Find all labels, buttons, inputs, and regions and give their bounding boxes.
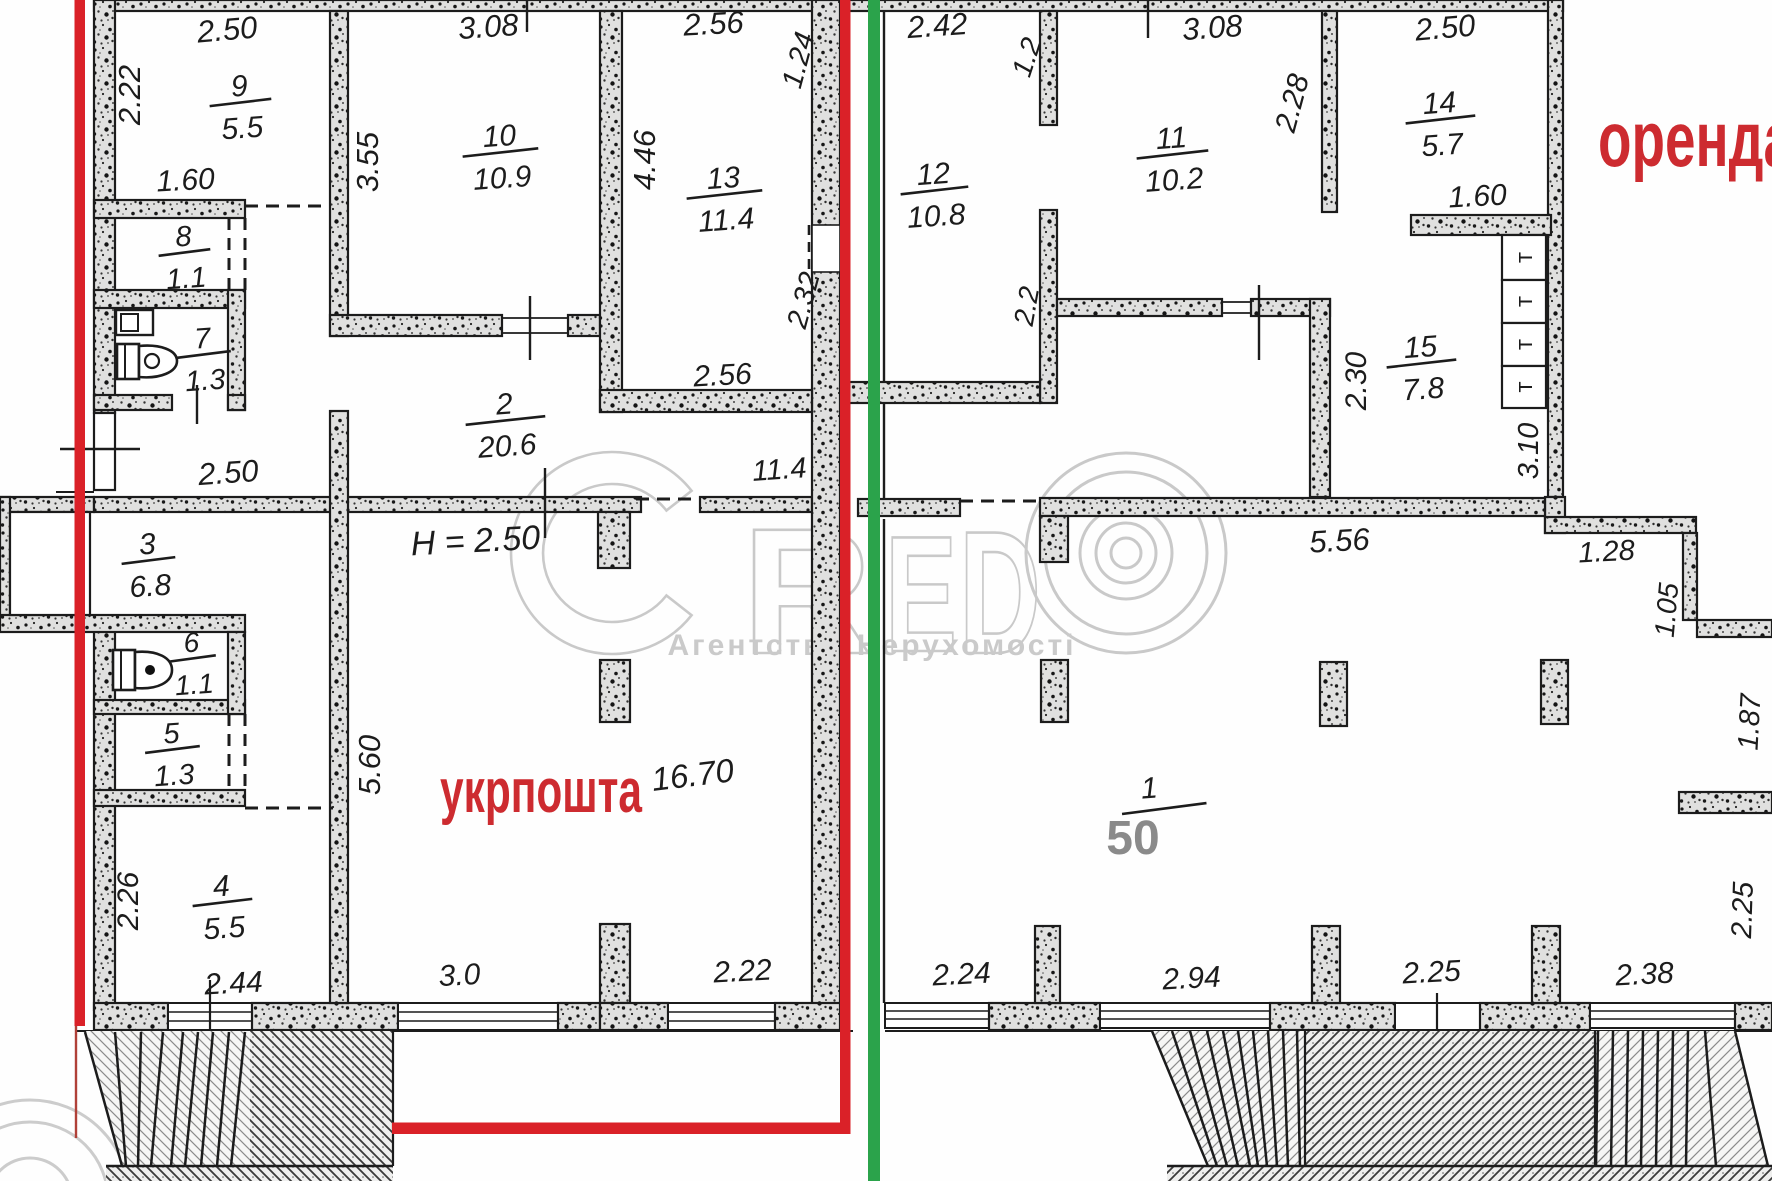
svg-text:3.08: 3.08 [457, 7, 520, 46]
svg-text:5.60: 5.60 [352, 735, 387, 795]
svg-text:5: 5 [162, 717, 181, 750]
svg-text:20.6: 20.6 [476, 428, 538, 465]
svg-text:2.50: 2.50 [195, 9, 259, 49]
svg-text:2.56: 2.56 [681, 4, 745, 42]
svg-text:1: 1 [1140, 771, 1159, 805]
svg-text:10.8: 10.8 [906, 198, 967, 235]
svg-text:1.60: 1.60 [1447, 178, 1507, 214]
svg-text:5.7: 5.7 [1420, 127, 1465, 163]
svg-text:т: т [1511, 339, 1538, 350]
svg-text:3: 3 [138, 527, 157, 561]
svg-text:2.94: 2.94 [1160, 961, 1221, 997]
svg-text:т: т [1511, 296, 1538, 307]
svg-text:2: 2 [494, 387, 514, 421]
svg-text:4: 4 [212, 869, 231, 903]
svg-text:9: 9 [230, 69, 249, 103]
svg-text:2.22: 2.22 [112, 65, 147, 126]
svg-text:5.56: 5.56 [1308, 521, 1371, 559]
svg-text:1.87: 1.87 [1733, 691, 1768, 751]
svg-text:5.5: 5.5 [220, 110, 264, 146]
svg-text:оренда: оренда [1598, 95, 1772, 183]
svg-text:1.05: 1.05 [1649, 581, 1685, 638]
svg-text:10.9: 10.9 [472, 160, 533, 197]
svg-text:11: 11 [1155, 121, 1188, 156]
svg-text:2.25: 2.25 [1726, 880, 1760, 939]
svg-text:14: 14 [1422, 86, 1458, 121]
svg-text:т: т [1511, 382, 1538, 393]
svg-text:1.3: 1.3 [184, 364, 226, 399]
svg-text:1.28: 1.28 [1578, 535, 1636, 570]
svg-text:3.10: 3.10 [1513, 423, 1545, 479]
svg-text:2.50: 2.50 [1413, 7, 1477, 47]
svg-text:8: 8 [174, 220, 192, 253]
svg-text:2.30: 2.30 [1340, 351, 1373, 411]
svg-text:11.4: 11.4 [751, 452, 807, 488]
svg-text:2.42: 2.42 [905, 6, 969, 45]
svg-text:7.8: 7.8 [1401, 371, 1445, 407]
svg-text:13: 13 [706, 161, 742, 196]
svg-text:H = 2.50: H = 2.50 [410, 519, 541, 564]
svg-text:1.3: 1.3 [153, 759, 195, 794]
svg-text:2.26: 2.26 [112, 871, 145, 931]
svg-text:4.46: 4.46 [627, 129, 662, 190]
svg-text:50: 50 [1106, 812, 1159, 865]
svg-text:2.44: 2.44 [202, 966, 263, 1002]
svg-text:1.1: 1.1 [165, 262, 207, 297]
svg-text:2.38: 2.38 [1613, 956, 1674, 992]
svg-text:11.4: 11.4 [697, 202, 755, 239]
svg-text:2.56: 2.56 [691, 357, 752, 393]
svg-text:2.22: 2.22 [711, 953, 772, 989]
svg-text:6.8: 6.8 [128, 568, 172, 604]
svg-text:3.08: 3.08 [1181, 8, 1244, 47]
svg-text:т: т [1511, 252, 1538, 263]
svg-text:1.1: 1.1 [174, 668, 215, 702]
svg-text:1.60: 1.60 [155, 162, 215, 198]
svg-text:12: 12 [916, 157, 952, 192]
svg-text:2.25: 2.25 [1400, 954, 1461, 990]
svg-text:укрпошта: укрпошта [440, 757, 642, 826]
svg-text:10: 10 [482, 119, 518, 154]
svg-text:5.5: 5.5 [202, 910, 246, 946]
svg-text:2.24: 2.24 [930, 957, 991, 993]
svg-text:6: 6 [182, 626, 200, 658]
svg-text:3.55: 3.55 [350, 131, 385, 192]
svg-text:2.50: 2.50 [196, 453, 260, 492]
svg-text:3.0: 3.0 [438, 958, 482, 993]
svg-text:15: 15 [1403, 330, 1439, 365]
svg-text:10.2: 10.2 [1144, 162, 1205, 199]
